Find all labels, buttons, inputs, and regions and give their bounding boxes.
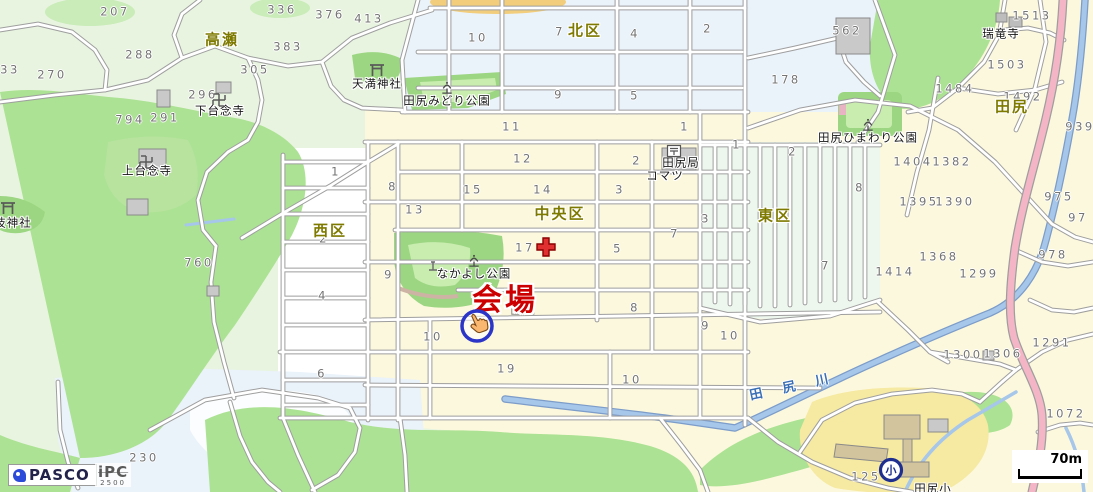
torii-icon [0,200,17,216]
block-number: 10 [468,32,488,44]
block-number: 305 [240,64,269,76]
district-label: 高瀬 [205,33,239,48]
block-number: 1300 [943,349,982,361]
scale-bar-line [1018,469,1082,479]
torii-icon [368,62,386,78]
park-icon [467,254,481,268]
post-icon [667,145,682,158]
poi-label: 技神社 [0,217,32,229]
block-number: 10 [622,374,642,386]
block-number: 1291 [1032,337,1071,349]
ipc-logo: iPC 2500 [95,463,131,487]
block-number: 8 [388,181,398,193]
block-number: 10 [423,331,443,343]
block-number: 1 [732,139,742,151]
scale-bar: 70m [1012,450,1088,483]
block-number: 9 [701,320,711,332]
block-number: 1503 [987,59,1026,71]
block-number: 291 [150,112,179,124]
district-label: 東区 [758,209,792,224]
block-number: 7 [555,26,565,38]
pasco-icon [13,469,26,482]
poi-label: コマツ [646,170,684,182]
block-number: 1072 [1046,408,1085,420]
block-number: 13 [405,204,425,216]
block-number: 5 [630,90,640,102]
block-number: 7 [821,260,831,272]
block-number: 97 [1068,212,1088,224]
block-number: 3 [701,213,711,225]
block-number: 178 [771,74,800,86]
block-number: 794 [115,114,144,126]
pasco-logo: PASCO [8,464,97,486]
monument-icon [427,260,439,272]
venue-cursor-icon[interactable] [455,304,499,348]
block-number: 939 [1065,121,1093,133]
block-number: 1368 [919,251,958,263]
block-number: 1382 [932,156,971,168]
block-number: 288 [125,49,154,61]
block-number: 1299 [959,268,998,280]
park-himawari-gate [839,104,846,115]
block-number: 1414 [875,266,914,278]
block-number: 14 [533,184,553,196]
svg-text:小: 小 [885,463,897,477]
block-number: 1404 [893,156,932,168]
poi-label: 田尻ひまわり公園 [818,132,918,144]
poi-label: 瑞竜寺 [982,28,1020,40]
block-number: 4 [630,28,640,40]
block-number: 2 [632,155,642,167]
block-number: 562 [832,25,861,37]
block-number: 33 [0,64,20,76]
block-number: 1306 [983,348,1022,360]
block-number: 4 [318,290,328,302]
block-number: 1390 [935,196,974,208]
poi-label: 天満神社 [352,78,402,90]
block-number: 7 [670,228,680,240]
block-number: 1 [680,121,690,133]
block-number: 336 [267,4,296,16]
block-number: 1395 [899,196,938,208]
block-number: 19 [497,363,517,375]
poi-label: 田尻みどり公園 [403,95,491,107]
block-number: 975 [1044,191,1073,203]
block-number: 15 [463,184,483,196]
park-icon [861,118,875,132]
block-number: 5 [613,243,623,255]
district-label: 田尻 [995,100,1029,115]
block-number: 270 [37,69,66,81]
block-number: 383 [273,41,302,53]
block-number: 8 [855,182,865,194]
block-number: 376 [315,9,344,21]
block-number: 413 [354,13,383,25]
block-number: 2 [788,146,798,158]
district-label: 中央区 [534,207,585,222]
map-viewport[interactable]: 2073363764132883833052703329679429176023… [0,0,1093,492]
block-number: 12 [513,153,533,165]
poi-label: なかよし公園 [437,268,511,280]
school-icon: 小 [877,456,905,484]
block-number: 1484 [935,83,974,95]
poi-label: 田尻小 [914,483,952,492]
manji-icon [139,155,153,169]
block-number: 10 [720,330,740,342]
block-number: 17 [515,242,535,254]
district-label: 北区 [568,24,602,39]
district-label: 西区 [313,224,347,239]
block-number: 978 [1038,249,1067,261]
block-number: 2 [703,23,713,35]
block-number: 8 [630,302,640,314]
block-number: 1 [331,166,341,178]
block-number: 11 [502,121,522,133]
poi-label: 田尻局 [662,157,700,169]
cross-icon [535,236,557,258]
ipc-logo-subtext: 2500 [98,479,128,487]
block-number: 9 [554,89,564,101]
block-number: 3 [615,184,625,196]
pasco-logo-text: PASCO [29,466,90,484]
block-number: 1513 [1012,10,1051,22]
scale-label: 70m [1018,452,1082,467]
park-icon [440,81,454,95]
block-number: 9 [384,269,394,281]
block-number: 6 [317,368,327,380]
block-number: 230 [129,452,158,464]
block-number: 207 [100,6,129,18]
manji-icon [212,93,226,107]
block-number: 760 [184,257,213,269]
